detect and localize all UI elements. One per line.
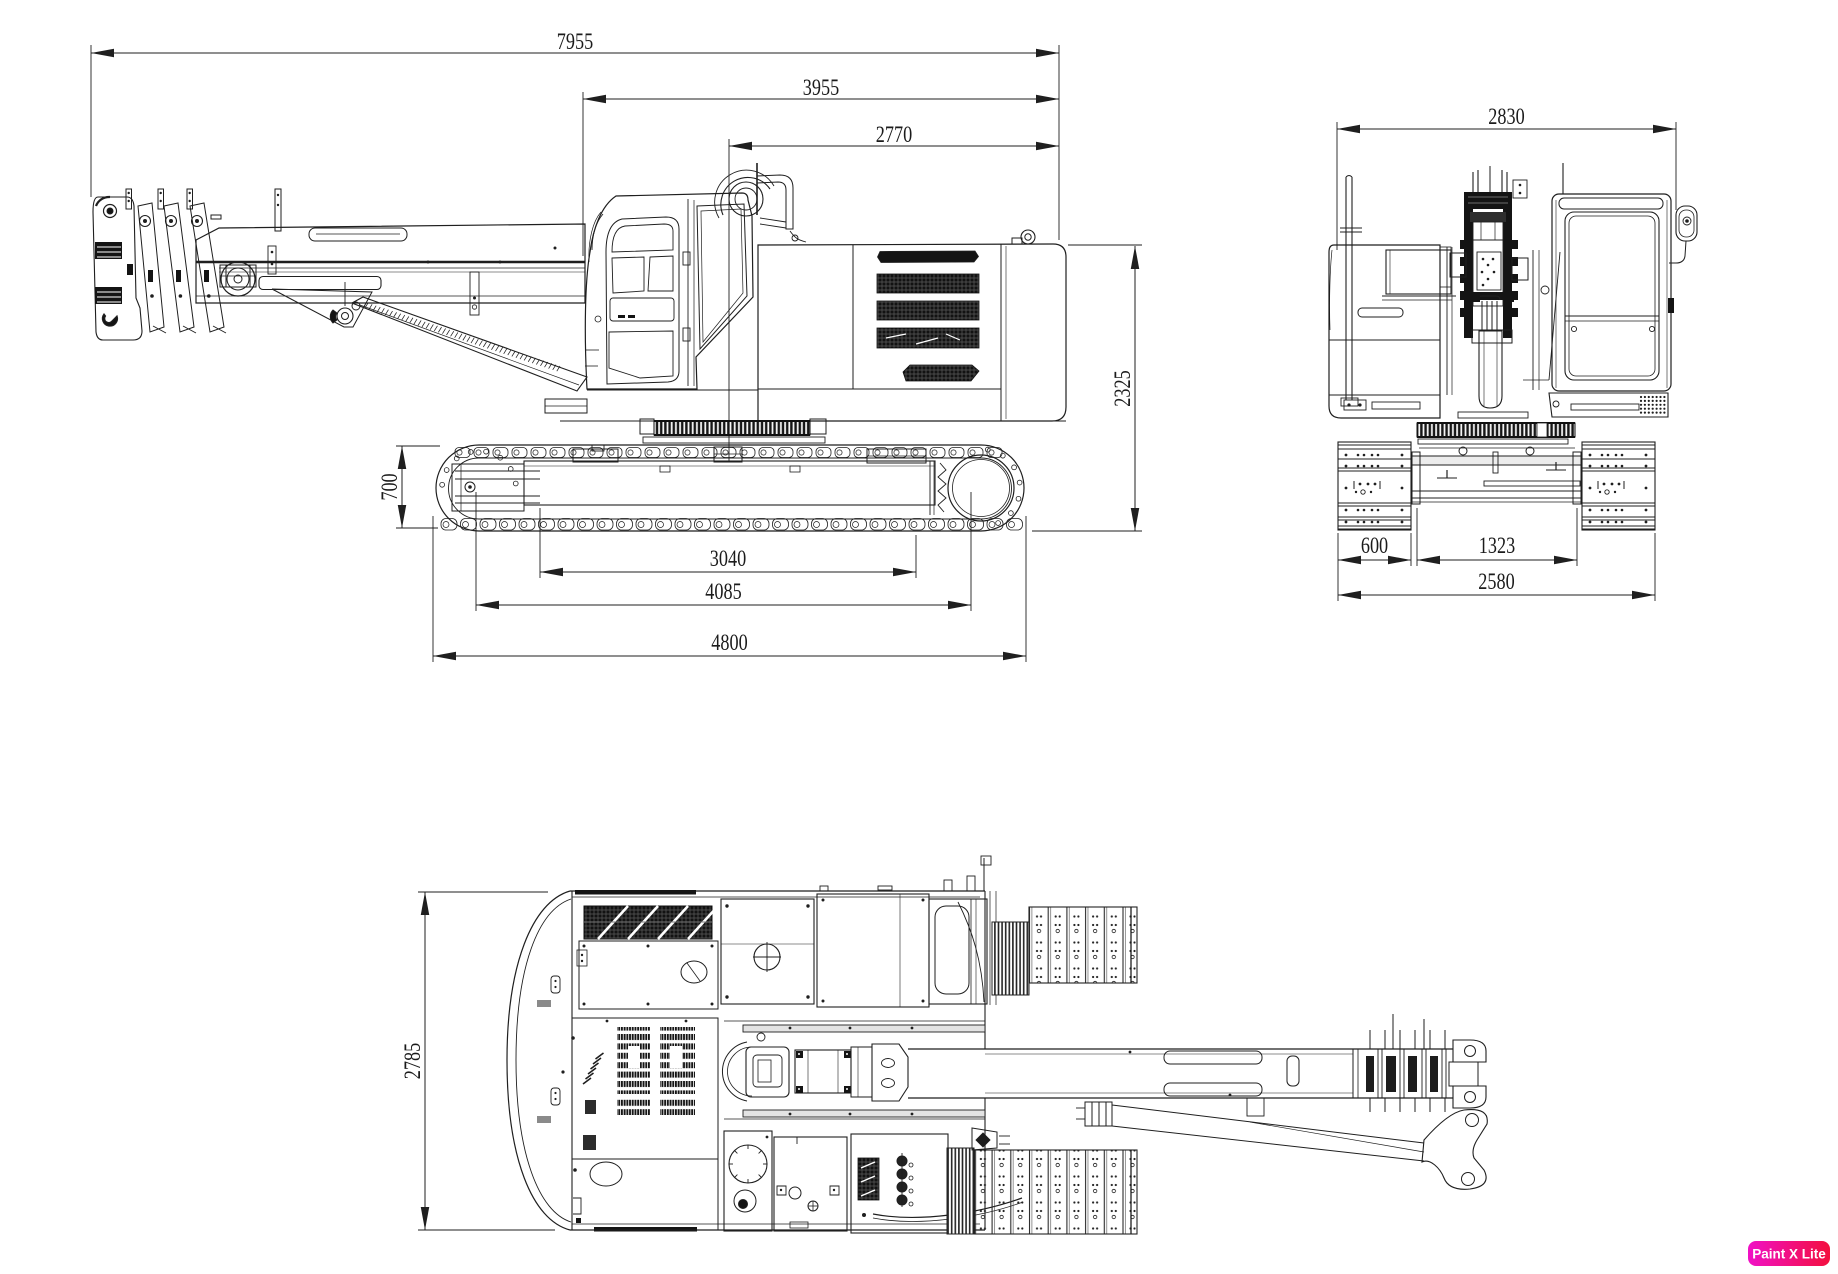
svg-text:1323: 1323 <box>1479 533 1515 558</box>
svg-text:4800: 4800 <box>711 630 747 655</box>
svg-text:7955: 7955 <box>557 29 593 54</box>
svg-text:4085: 4085 <box>705 579 741 604</box>
svg-text:Paint X Lite: Paint X Lite <box>1752 1247 1826 1262</box>
svg-text:600: 600 <box>1361 533 1388 558</box>
svg-text:2770: 2770 <box>876 122 912 147</box>
svg-text:3955: 3955 <box>803 75 839 100</box>
svg-text:2580: 2580 <box>1478 569 1514 594</box>
svg-text:2830: 2830 <box>1488 104 1524 129</box>
svg-text:3040: 3040 <box>710 546 746 571</box>
svg-text:700: 700 <box>377 473 402 500</box>
svg-text:2785: 2785 <box>400 1043 425 1079</box>
svg-text:2325: 2325 <box>1110 370 1135 406</box>
